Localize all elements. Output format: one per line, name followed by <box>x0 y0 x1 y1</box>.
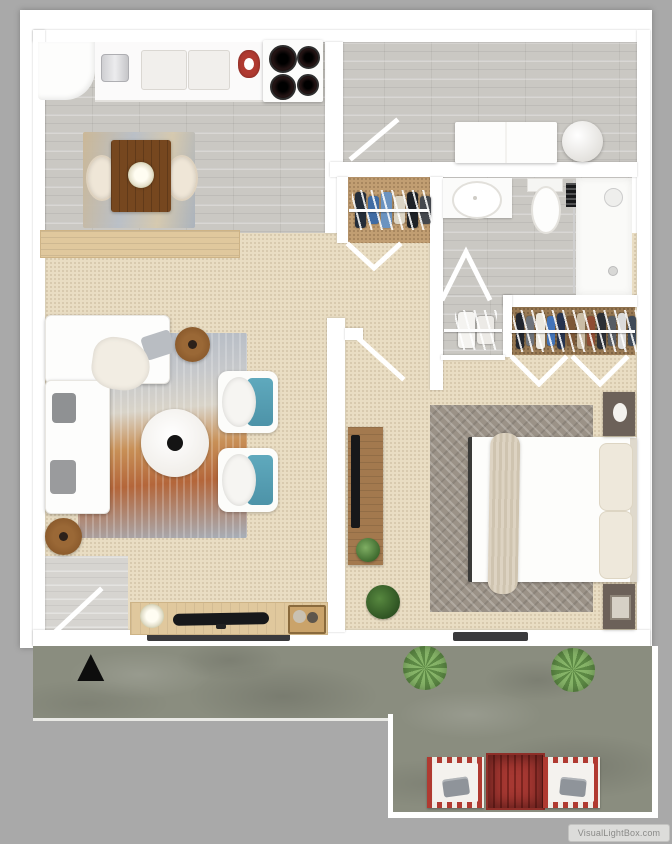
entry-alcove-floor <box>38 556 128 632</box>
vanity-sink <box>452 181 502 219</box>
entry-pouf <box>562 121 603 162</box>
bed-pillow <box>599 511 633 579</box>
wall-bedroom-door-stub <box>345 328 363 340</box>
entry-closet-rod <box>349 209 429 212</box>
patio-table <box>486 753 545 810</box>
linen-closet-edge <box>441 355 505 360</box>
side-table-top-knob <box>188 340 197 349</box>
north-marker: ▲ <box>68 642 114 688</box>
toaster <box>101 54 129 82</box>
nightstand-picture-frame <box>610 595 631 620</box>
wall-top <box>33 30 637 42</box>
patio-border-bottom <box>390 812 658 818</box>
towel-rail <box>566 183 576 207</box>
stove-burner <box>269 45 297 73</box>
tray-dish <box>293 610 306 623</box>
patio-border-right <box>652 646 658 818</box>
patio-bush <box>403 646 447 690</box>
armchair-bottom <box>218 448 278 512</box>
bedroom-tv <box>351 435 360 528</box>
stove-burner <box>297 46 320 69</box>
side-table-bottom-knob <box>59 532 68 541</box>
watermark: VisualLightBox.com <box>568 824 670 842</box>
patio-pillow <box>442 776 470 797</box>
patio-border-left <box>388 714 393 818</box>
wall-hall-bathroom <box>330 162 637 177</box>
stove-burner <box>270 74 296 100</box>
kettle-lid <box>244 58 254 70</box>
bedroom-floor-plant <box>366 585 400 619</box>
wall-left <box>33 30 45 646</box>
coffee-table-knob <box>167 435 183 451</box>
sink-drain <box>473 196 477 200</box>
sofa-pillow <box>50 460 76 494</box>
toilet-bowl <box>531 186 561 234</box>
wall-living-bedroom <box>327 318 345 632</box>
bedroom-closet-rod <box>511 330 635 333</box>
bedroom-patio-door <box>453 632 528 641</box>
armchair-top <box>218 371 278 433</box>
patio-pillow <box>559 777 587 798</box>
shower-drain <box>608 266 618 276</box>
entry-bench <box>455 122 557 163</box>
stove-burner <box>297 74 319 96</box>
nightstand-decor <box>613 403 627 422</box>
wall-bottom <box>33 630 650 646</box>
shower-head <box>604 188 623 207</box>
patio-bush <box>551 648 595 692</box>
linen-closet-rod <box>444 329 502 332</box>
bed-throw-blanket <box>488 433 521 594</box>
floor-plan: ▲ VisualLightBox.com <box>0 0 672 844</box>
tray-bowl <box>307 612 318 623</box>
bed-pillow <box>599 443 633 511</box>
sofa-pillow <box>52 393 76 423</box>
console-table <box>40 230 240 258</box>
tv-stand-foot <box>216 624 226 629</box>
centerpiece-flowers <box>128 162 154 188</box>
armchair-seat <box>222 454 256 506</box>
console-plant <box>356 538 380 562</box>
wall-closet-divider <box>503 295 512 357</box>
wall-bathroom-bottom <box>503 295 637 307</box>
console-flowers <box>140 604 164 628</box>
sink-basin-left <box>141 50 187 90</box>
sink-basin-right <box>188 50 230 90</box>
wall-entry-closet-left <box>337 177 348 243</box>
armchair-seat <box>222 377 256 427</box>
